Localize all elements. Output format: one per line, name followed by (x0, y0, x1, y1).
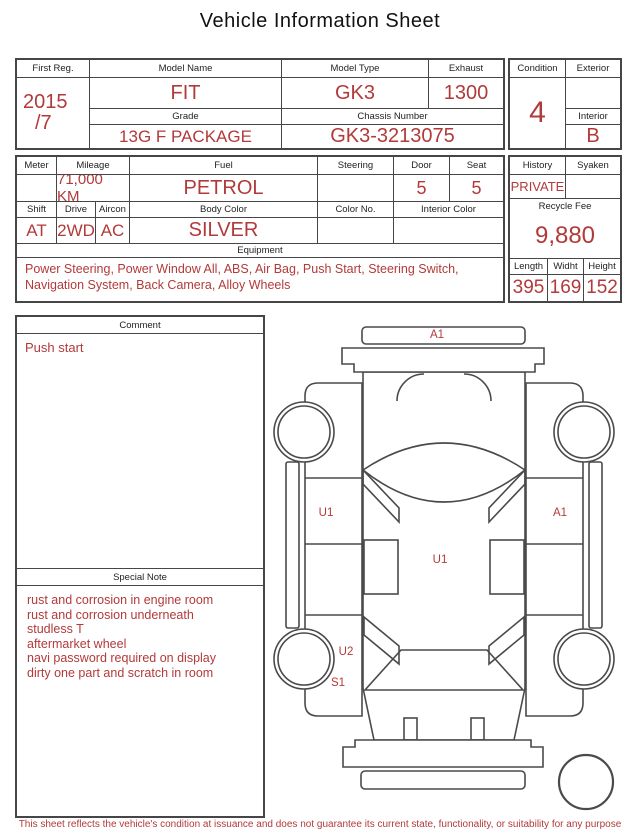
cabin-mark: U1 (433, 554, 448, 566)
fuel-label: Fuel (129, 157, 317, 174)
front-grille-panel (342, 348, 544, 372)
equipment-value: Power Steering, Power Window All, ABS, A… (17, 257, 503, 301)
condition-value: 4 (510, 77, 565, 148)
interior-label: Interior (565, 108, 620, 124)
model-type-label: Model Type (281, 60, 428, 77)
page-title: Vehicle Information Sheet (0, 10, 640, 33)
special-note-line: dirty one part and scratch in room (27, 666, 257, 681)
first-reg-label: First Reg. (17, 60, 89, 77)
height-value: 152 (583, 274, 620, 301)
length-label: Length (510, 259, 547, 274)
door-value: 5 (393, 174, 449, 201)
spare-tire (559, 755, 613, 809)
left-sill-rail (286, 462, 299, 628)
front-bumper-mark: A1 (430, 329, 444, 341)
aircon-label: Aircon (95, 201, 129, 217)
right-front-door-mark: A1 (553, 507, 567, 519)
special-note-line: navi password required on display (27, 651, 257, 666)
comment-text: Push start (17, 334, 263, 568)
syaken-value (565, 174, 620, 198)
left-rear-sill-mark: S1 (331, 677, 345, 689)
exterior-label: Exterior (565, 60, 620, 77)
recycle-fee-label: Recycle Fee (510, 199, 620, 214)
model-name-label: Model Name (89, 60, 281, 77)
equipment-label: Equipment (17, 243, 503, 257)
aircon-value: AC (95, 217, 129, 243)
history-label: History (510, 157, 565, 174)
mileage-label: Mileage (56, 157, 129, 174)
model-type-value: GK3 (281, 77, 428, 108)
fee-dimension-table: History Syaken PRIVATE Recycle Fee 9,880… (508, 155, 622, 303)
first-reg-value: 2015 /7 (17, 77, 89, 148)
grade-label: Grade (89, 108, 281, 124)
length-value: 395 (510, 274, 547, 301)
width-value: 169 (547, 274, 583, 301)
steering-label: Steering (317, 157, 393, 174)
rear-panel (343, 740, 543, 767)
comment-label: Comment (17, 317, 263, 334)
grade-value: 13G F PACKAGE (89, 124, 281, 148)
vehicle-information-sheet: Vehicle Information Sheet First Reg. Mod… (0, 0, 640, 835)
drive-label: Drive (56, 201, 95, 217)
history-section: History Syaken PRIVATE (510, 157, 620, 198)
steering-value (317, 174, 393, 201)
left-front-door-mark: U1 (319, 507, 334, 519)
drive-value: 2WD (56, 217, 95, 243)
chassis-number-label: Chassis Number (281, 108, 503, 124)
recycle-fee-value: 9,880 (510, 214, 620, 258)
mileage-value: 71,000 KM (56, 174, 129, 201)
special-note-line: rust and corrosion underneath (27, 608, 257, 623)
body-color-label: Body Color (129, 201, 317, 217)
right-sill-rail (589, 462, 602, 628)
history-value: PRIVATE (510, 174, 565, 198)
special-note-line: rust and corrosion in engine room (27, 593, 257, 608)
interior-color-value (393, 217, 503, 243)
fuel-value: PETROL (129, 174, 317, 201)
special-note-label: Special Note (17, 568, 263, 586)
exterior-value (565, 77, 620, 108)
syaken-label: Syaken (565, 157, 620, 174)
footer-disclaimer: This sheet reflects the vehicle's condit… (0, 819, 640, 830)
width-label: Widht (547, 259, 583, 274)
special-note-line: aftermarket wheel (27, 637, 257, 652)
shift-value: AT (17, 217, 56, 243)
recycle-fee-section: Recycle Fee 9,880 (510, 198, 620, 258)
comment-panel: Comment Push start Special Note rust and… (15, 315, 265, 818)
rear-bumper (361, 771, 525, 789)
interior-color-label: Interior Color (393, 201, 503, 217)
interior-value: B (565, 124, 620, 148)
condition-table: Condition Exterior 4 Interior B (508, 58, 622, 150)
color-no-value (317, 217, 393, 243)
chassis-number-value: GK3-3213075 (281, 124, 503, 148)
vehicle-spec-table: First Reg. Model Name Model Type Exhaust… (15, 58, 505, 150)
seat-value: 5 (449, 174, 503, 201)
meter-label: Meter (17, 157, 56, 174)
exhaust-label: Exhaust (428, 60, 503, 77)
dimension-section: Length Widht Height 395 169 152 (510, 258, 620, 301)
special-note-list: rust and corrosion in engine room rust a… (17, 586, 263, 816)
meter-value (17, 174, 56, 201)
seat-label: Seat (449, 157, 503, 174)
special-note-line: studless T (27, 622, 257, 637)
color-no-label: Color No. (317, 201, 393, 217)
left-rear-door-mark: U2 (339, 646, 354, 658)
body-color-value: SILVER (129, 217, 317, 243)
door-label: Door (393, 157, 449, 174)
height-label: Height (583, 259, 620, 274)
exhaust-value: 1300 (428, 77, 503, 108)
condition-label: Condition (510, 60, 565, 77)
shift-label: Shift (17, 201, 56, 217)
vehicle-detail-table: Meter Mileage Fuel Steering Door Seat 71… (15, 155, 505, 303)
car-damage-diagram: A1 U1 A1 U1 U2 S1 (266, 312, 634, 818)
model-name-value: FIT (89, 77, 281, 108)
